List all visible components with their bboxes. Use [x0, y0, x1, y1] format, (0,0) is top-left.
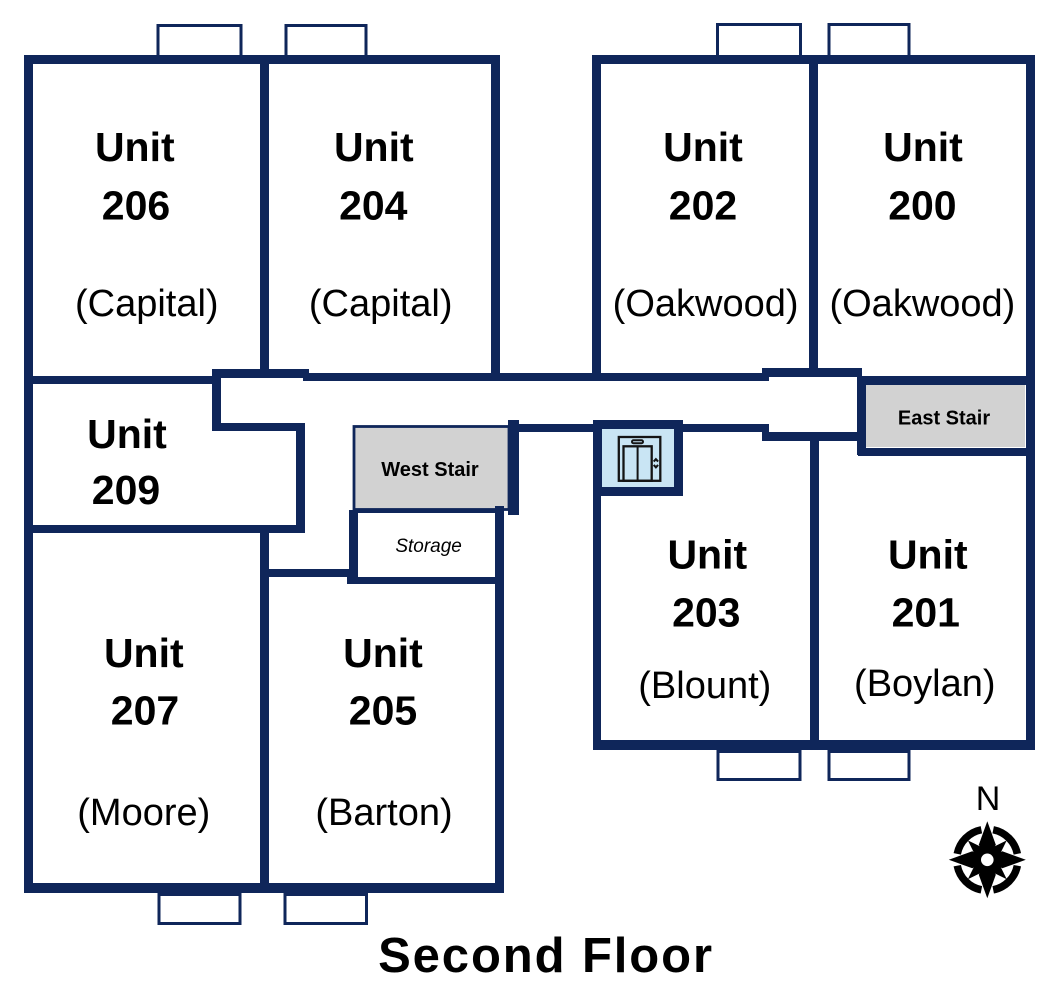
svg-text:West Stair: West Stair: [381, 459, 479, 481]
svg-text:Storage: Storage: [395, 536, 462, 557]
svg-text:Unit: Unit: [667, 531, 747, 577]
svg-text:202: 202: [669, 183, 737, 229]
svg-text:Unit: Unit: [104, 630, 184, 676]
svg-text:Unit: Unit: [883, 124, 963, 170]
svg-text:Unit: Unit: [87, 411, 167, 457]
svg-text:East Stair: East Stair: [898, 408, 990, 430]
svg-text:(Moore): (Moore): [77, 792, 210, 834]
svg-text:(Barton): (Barton): [315, 792, 452, 834]
svg-text:Unit: Unit: [343, 630, 423, 676]
svg-text:Unit: Unit: [334, 124, 414, 170]
svg-text:207: 207: [111, 688, 179, 734]
svg-text:204: 204: [339, 183, 408, 229]
svg-text:209: 209: [92, 467, 160, 513]
svg-text:(Capital): (Capital): [75, 283, 219, 325]
svg-text:(Boylan): (Boylan): [854, 663, 996, 705]
svg-text:(Oakwood): (Oakwood): [829, 283, 1015, 325]
svg-text:203: 203: [672, 590, 740, 636]
svg-text:N: N: [976, 780, 1001, 818]
svg-text:201: 201: [892, 590, 960, 636]
svg-text:206: 206: [102, 183, 170, 229]
svg-text:205: 205: [349, 688, 417, 734]
svg-text:(Blount): (Blount): [638, 665, 771, 707]
svg-text:Unit: Unit: [95, 124, 175, 170]
svg-text:Unit: Unit: [663, 124, 743, 170]
svg-text:Second Floor: Second Floor: [378, 929, 714, 983]
svg-text:(Capital): (Capital): [309, 283, 453, 325]
svg-text:Unit: Unit: [888, 531, 968, 577]
svg-text:(Oakwood): (Oakwood): [613, 283, 799, 325]
svg-text:200: 200: [888, 183, 956, 229]
